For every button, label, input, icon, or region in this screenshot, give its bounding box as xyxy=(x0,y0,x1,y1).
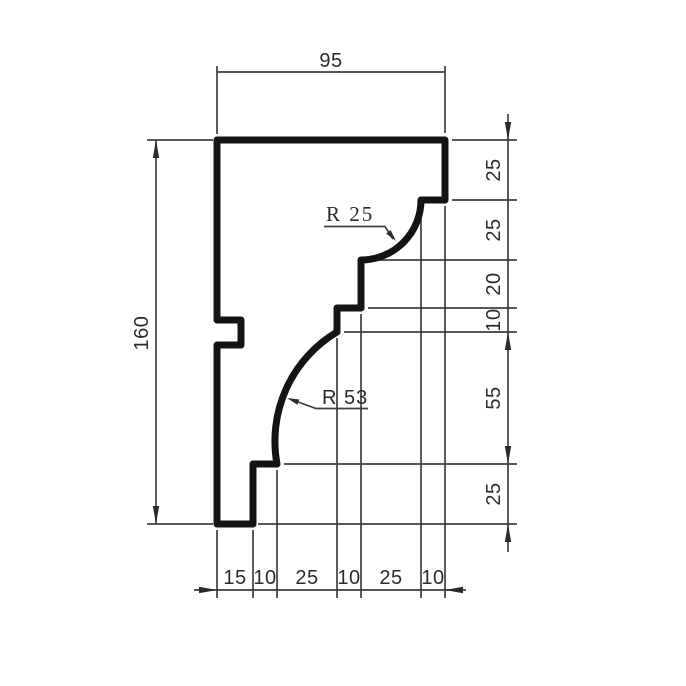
arrowhead-down xyxy=(505,446,511,464)
bottom-chain-label-2: 25 xyxy=(295,567,318,589)
right-chain-label-4: 55 xyxy=(483,386,505,409)
radius-25-label: R 25 xyxy=(326,202,374,226)
moulding-profile-drawing: 95 160 25 25 20 10 55 25 15 10 25 10 25 … xyxy=(0,0,686,686)
bottom-chain-label-4: 25 xyxy=(379,567,402,589)
right-chain-label-3: 10 xyxy=(483,308,505,331)
radius-53-arrowhead xyxy=(287,398,299,405)
bottom-chain-label-3: 10 xyxy=(337,567,360,589)
right-chain-label-5: 25 xyxy=(483,482,505,505)
arrowhead-up xyxy=(505,332,511,350)
right-chain-label-1: 25 xyxy=(483,218,505,241)
radius-25-leader xyxy=(324,227,393,240)
arrowhead-down xyxy=(505,122,511,140)
arrowhead-right xyxy=(199,587,217,593)
arrowhead-left xyxy=(445,587,463,593)
arrowhead-down xyxy=(153,506,159,524)
arrowheads xyxy=(153,122,511,593)
bottom-chain-label-5: 10 xyxy=(421,567,444,589)
radius-53-label: R 53 xyxy=(322,387,368,409)
top-width-label: 95 xyxy=(319,50,342,72)
right-chain-label-0: 25 xyxy=(483,158,505,181)
dimension-labels: 95 160 25 25 20 10 55 25 15 10 25 10 25 … xyxy=(131,50,505,589)
right-chain-label-2: 20 xyxy=(483,272,505,295)
arrowhead-up xyxy=(505,524,511,542)
left-height-label: 160 xyxy=(131,316,153,351)
technical-drawing-canvas: 95 160 25 25 20 10 55 25 15 10 25 10 25 … xyxy=(0,0,686,686)
bottom-chain-label-1: 10 xyxy=(253,567,276,589)
bottom-chain-label-0: 15 xyxy=(223,567,246,589)
arrowhead-up xyxy=(153,140,159,158)
